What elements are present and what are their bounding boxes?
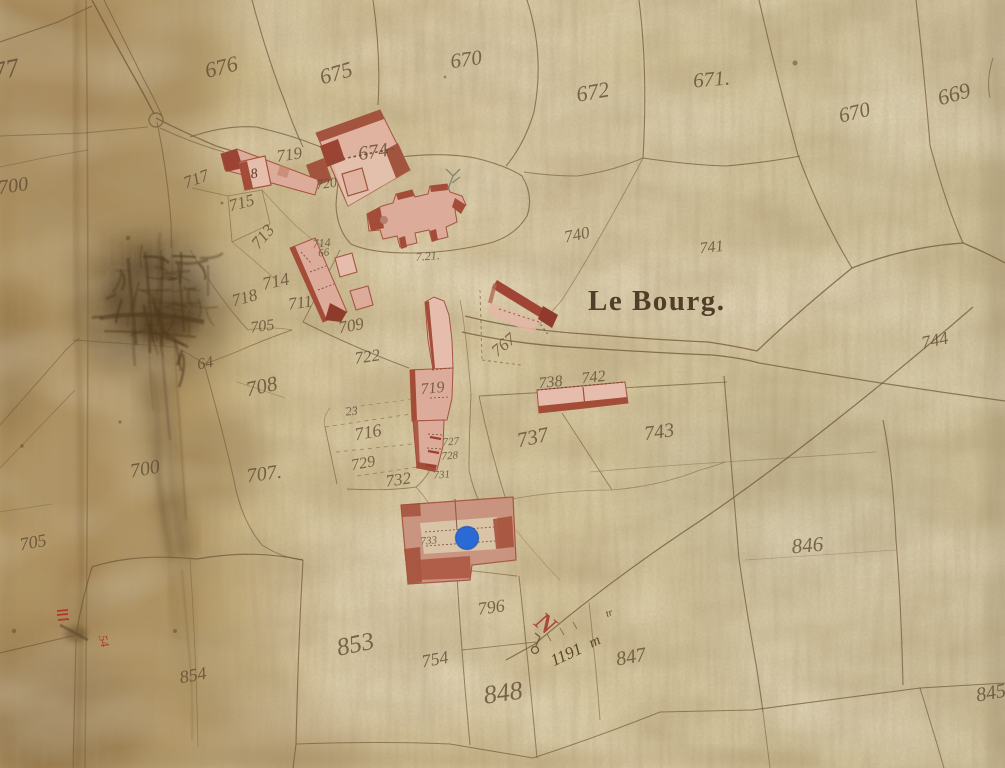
svg-text:845: 845 bbox=[974, 680, 1005, 707]
svg-text:720: 720 bbox=[315, 176, 338, 194]
svg-text:848: 848 bbox=[482, 676, 525, 710]
svg-text:7.21.: 7.21. bbox=[415, 248, 440, 264]
svg-text:846: 846 bbox=[791, 532, 825, 559]
svg-text:64: 64 bbox=[196, 354, 215, 374]
svg-text:731: 731 bbox=[433, 468, 450, 481]
svg-text:705: 705 bbox=[249, 316, 275, 336]
svg-text:719: 719 bbox=[275, 143, 303, 165]
svg-text:733: 733 bbox=[420, 534, 438, 547]
svg-text:23: 23 bbox=[345, 404, 358, 419]
svg-text:700: 700 bbox=[0, 173, 30, 199]
svg-text:711: 711 bbox=[287, 291, 314, 313]
svg-text:674: 674 bbox=[357, 139, 390, 165]
svg-text:741: 741 bbox=[699, 238, 725, 257]
svg-text:727: 727 bbox=[442, 435, 460, 448]
svg-text:670: 670 bbox=[449, 45, 484, 73]
svg-text:732: 732 bbox=[384, 468, 412, 490]
svg-text:738: 738 bbox=[538, 373, 564, 392]
svg-text:719: 719 bbox=[420, 379, 446, 398]
svg-text:722: 722 bbox=[353, 345, 381, 367]
svg-text:66: 66 bbox=[318, 247, 331, 260]
svg-text:Le Bourg.: Le Bourg. bbox=[588, 285, 726, 317]
svg-text:728: 728 bbox=[441, 449, 459, 462]
svg-text:796: 796 bbox=[476, 595, 506, 619]
svg-text:743: 743 bbox=[643, 419, 676, 445]
svg-text:742: 742 bbox=[581, 368, 607, 387]
svg-text:671.: 671. bbox=[692, 65, 731, 92]
